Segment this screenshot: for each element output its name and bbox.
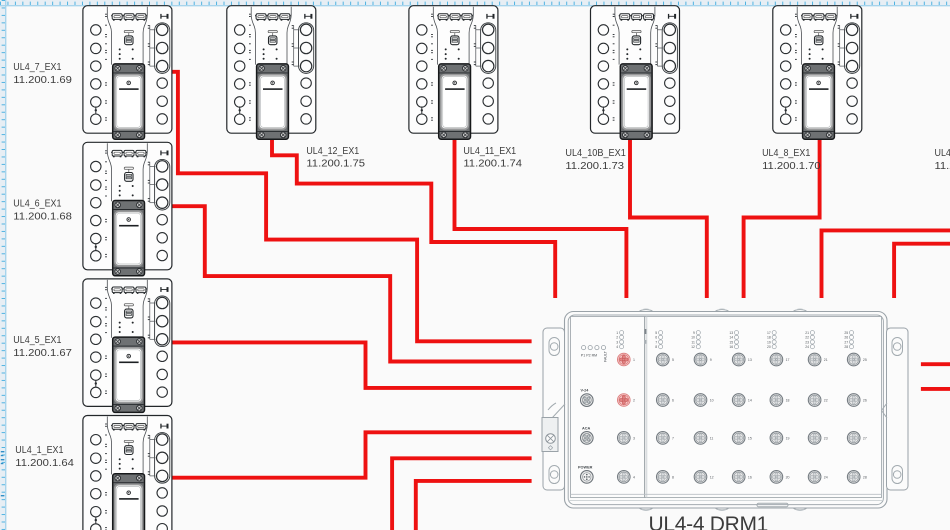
svg-text:20: 20 [767, 345, 771, 349]
svg-text:19: 19 [786, 437, 790, 441]
svg-text:11.200.1.74: 11.200.1.74 [463, 159, 522, 170]
svg-text:4: 4 [633, 476, 635, 480]
svg-text:5: 5 [655, 331, 657, 335]
svg-text:25: 25 [863, 358, 867, 362]
svg-text:UL4_11_EX1: UL4_11_EX1 [463, 146, 516, 157]
svg-text:11: 11 [691, 340, 695, 344]
svg-text:ACA: ACA [582, 426, 590, 430]
svg-text:4: 4 [616, 345, 618, 349]
svg-text:17: 17 [767, 331, 771, 335]
svg-text:19: 19 [767, 340, 771, 344]
svg-text:17: 17 [786, 358, 790, 362]
svg-text:11.200.1.75: 11.200.1.75 [306, 159, 365, 170]
svg-text:7: 7 [672, 437, 674, 441]
svg-text:14: 14 [748, 399, 752, 403]
svg-text:12: 12 [710, 476, 714, 480]
svg-text:21: 21 [824, 358, 828, 362]
svg-text:UL4_1_EX1: UL4_1_EX1 [15, 445, 63, 456]
svg-text:24: 24 [824, 476, 828, 480]
svg-text:12: 12 [691, 345, 695, 349]
svg-text:23: 23 [805, 340, 809, 344]
svg-text:3: 3 [633, 437, 635, 441]
svg-text:V-24: V-24 [581, 389, 590, 393]
svg-text:18: 18 [767, 336, 771, 340]
svg-text:UL4-4 DRM1: UL4-4 DRM1 [649, 513, 769, 530]
svg-text:P1 P2 RM: P1 P2 RM [581, 354, 597, 358]
svg-text:11: 11 [710, 437, 714, 441]
svg-text:23: 23 [824, 437, 828, 441]
svg-text:22: 22 [824, 399, 828, 403]
svg-text:13: 13 [748, 358, 752, 362]
svg-text:7: 7 [655, 340, 657, 344]
svg-text:11.200.1.71: 11.200.1.71 [935, 161, 950, 172]
svg-text:FAULT: FAULT [604, 350, 608, 362]
svg-text:6: 6 [672, 399, 674, 403]
svg-text:1: 1 [633, 358, 635, 362]
svg-text:UL4_7_EX1: UL4_7_EX1 [13, 62, 61, 73]
svg-text:25: 25 [844, 331, 848, 335]
svg-text:26: 26 [863, 399, 867, 403]
svg-text:15: 15 [748, 437, 752, 441]
svg-text:28: 28 [844, 345, 848, 349]
svg-text:UL4_12_EX1: UL4_12_EX1 [306, 146, 359, 157]
svg-text:8: 8 [672, 476, 674, 480]
svg-text:UL4_8_EX1: UL4_8_EX1 [762, 148, 810, 159]
svg-text:UL4_9_EX1: UL4_9_EX1 [935, 148, 950, 159]
svg-text:11.200.1.69: 11.200.1.69 [13, 75, 72, 86]
svg-text:11.200.1.67: 11.200.1.67 [13, 348, 72, 359]
svg-text:18: 18 [786, 399, 790, 403]
svg-text:20: 20 [786, 476, 790, 480]
svg-text:9: 9 [710, 358, 712, 362]
svg-text:10: 10 [710, 399, 714, 403]
svg-text:10: 10 [691, 336, 695, 340]
svg-text:22: 22 [805, 336, 809, 340]
svg-text:14: 14 [729, 336, 733, 340]
svg-text:5: 5 [672, 358, 674, 362]
svg-text:3: 3 [616, 340, 618, 344]
svg-text:15: 15 [729, 340, 733, 344]
svg-text:2: 2 [616, 336, 618, 340]
svg-text:6: 6 [655, 336, 657, 340]
svg-text:16: 16 [729, 345, 733, 349]
svg-text:21: 21 [805, 331, 809, 335]
svg-text:POWER: POWER [578, 465, 593, 469]
svg-text:1: 1 [616, 331, 618, 335]
svg-text:28: 28 [863, 476, 867, 480]
svg-text:2: 2 [633, 399, 635, 403]
svg-text:UL4_10B_EX1: UL4_10B_EX1 [565, 148, 625, 159]
svg-text:16: 16 [748, 476, 752, 480]
svg-text:27: 27 [863, 437, 867, 441]
svg-text:UL4_6_EX1: UL4_6_EX1 [13, 198, 61, 209]
svg-text:13: 13 [729, 331, 733, 335]
svg-text:UL4_5_EX1: UL4_5_EX1 [13, 335, 61, 346]
svg-text:11.200.1.64: 11.200.1.64 [15, 458, 74, 469]
svg-text:8: 8 [655, 345, 657, 349]
svg-text:26: 26 [844, 336, 848, 340]
svg-text:24: 24 [805, 345, 809, 349]
svg-text:11.200.1.68: 11.200.1.68 [13, 211, 72, 222]
svg-text:11.200.1.70: 11.200.1.70 [762, 161, 821, 172]
svg-text:11.200.1.73: 11.200.1.73 [565, 161, 624, 172]
svg-text:9: 9 [693, 331, 695, 335]
svg-text:27: 27 [844, 340, 848, 344]
